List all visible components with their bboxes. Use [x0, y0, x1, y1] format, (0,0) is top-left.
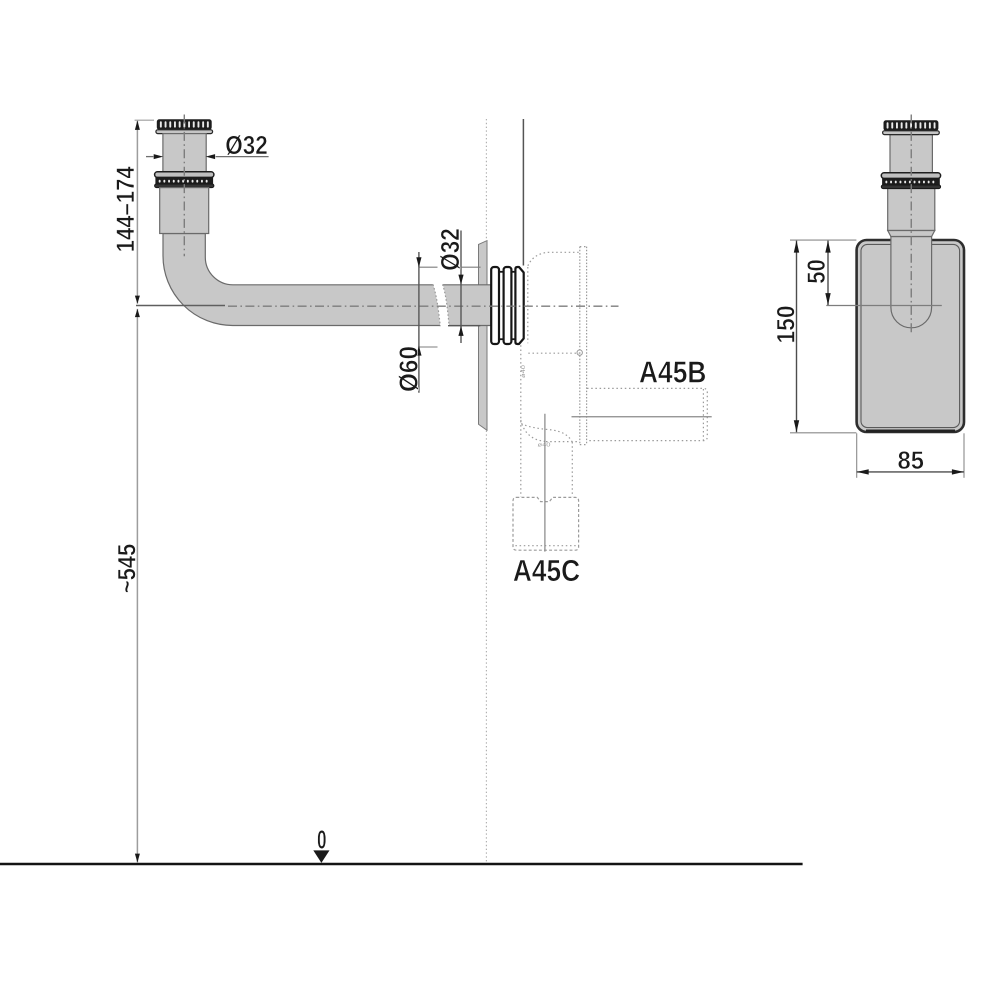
- svg-text:ø40: ø40: [538, 443, 551, 449]
- svg-text:~545: ~545: [114, 544, 142, 594]
- svg-text:A45B: A45B: [639, 356, 706, 390]
- svg-text:Ø32: Ø32: [225, 130, 268, 160]
- svg-text:ø40: ø40: [521, 365, 527, 378]
- svg-text:Ø60: Ø60: [393, 346, 423, 392]
- svg-text:150: 150: [773, 306, 801, 344]
- svg-text:0: 0: [317, 825, 327, 855]
- svg-text:85: 85: [898, 447, 925, 475]
- svg-text:Ø32: Ø32: [435, 228, 465, 271]
- svg-text:50: 50: [803, 259, 831, 284]
- svg-text:144–174: 144–174: [112, 166, 140, 252]
- svg-text:A45C: A45C: [513, 554, 580, 588]
